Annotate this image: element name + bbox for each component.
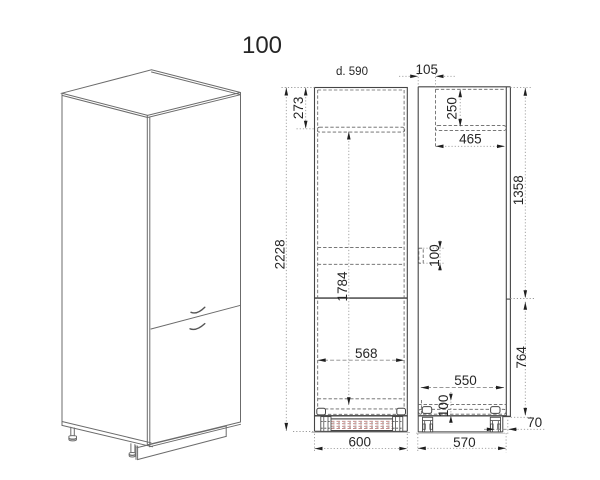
svg-text:1358: 1358 — [511, 175, 526, 205]
svg-text:600: 600 — [349, 435, 372, 450]
svg-text:250: 250 — [445, 97, 460, 120]
svg-text:570: 570 — [453, 435, 476, 450]
svg-text:568: 568 — [355, 346, 378, 361]
svg-text:100: 100 — [242, 32, 282, 59]
svg-text:d. 590: d. 590 — [336, 66, 368, 78]
svg-text:105: 105 — [416, 62, 439, 77]
svg-text:2228: 2228 — [273, 239, 288, 269]
svg-text:465: 465 — [459, 132, 482, 147]
svg-text:100: 100 — [427, 244, 442, 267]
svg-text:273: 273 — [291, 97, 306, 120]
svg-text:70: 70 — [527, 415, 542, 430]
svg-text:550: 550 — [454, 373, 477, 388]
svg-text:1784: 1784 — [335, 271, 350, 302]
svg-text:764: 764 — [514, 346, 529, 369]
svg-text:100: 100 — [436, 395, 451, 418]
